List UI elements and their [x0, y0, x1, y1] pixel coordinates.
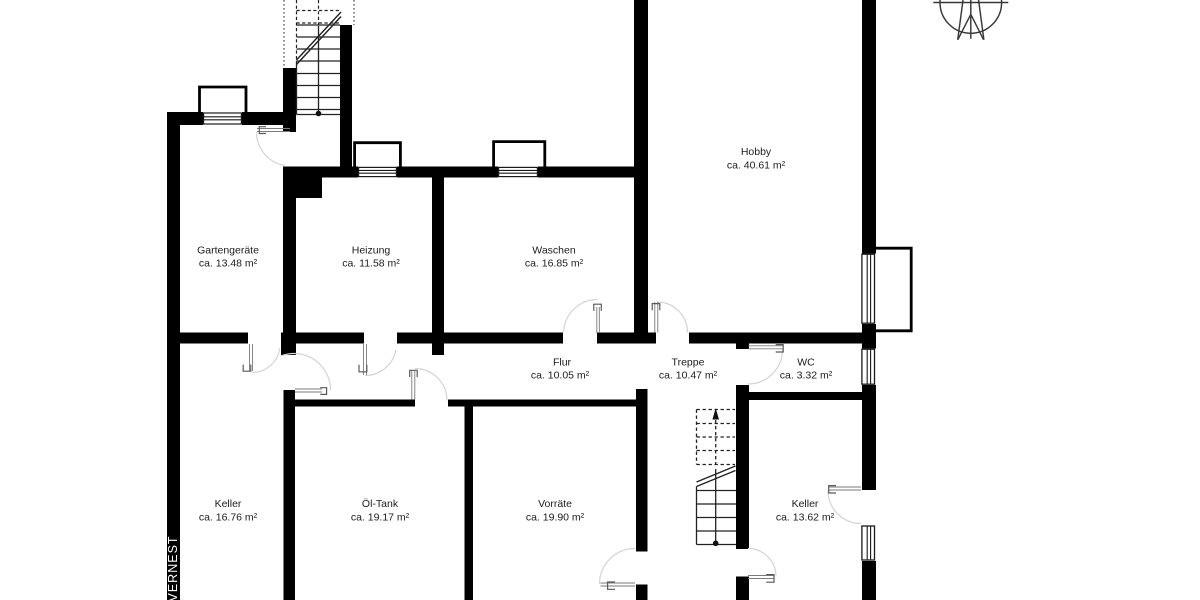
svg-text:Treppe: Treppe [672, 357, 705, 369]
svg-text:ca. 10.05 m²: ca. 10.05 m² [531, 370, 590, 382]
svg-text:ca. 16.76 m²: ca. 16.76 m² [199, 512, 258, 524]
svg-text:Gartengeräte: Gartengeräte [197, 245, 259, 257]
svg-text:WC: WC [797, 357, 815, 369]
svg-text:ca. 40.61 m²: ca. 40.61 m² [727, 160, 786, 172]
svg-text:Vorräte: Vorräte [538, 498, 572, 510]
svg-text:ca. 10.47 m²: ca. 10.47 m² [659, 370, 718, 382]
svg-text:ca. 13.62 m²: ca. 13.62 m² [776, 512, 835, 524]
svg-text:Waschen: Waschen [532, 245, 576, 257]
svg-text:Heizung: Heizung [352, 245, 391, 257]
svg-text:VERNEST: VERNEST [166, 535, 180, 600]
svg-text:ca. 19.90 m²: ca. 19.90 m² [526, 512, 585, 524]
svg-text:Keller: Keller [792, 498, 819, 510]
svg-text:ca. 11.58 m²: ca. 11.58 m² [342, 258, 400, 270]
svg-text:ca. 13.48 m²: ca. 13.48 m² [199, 258, 258, 270]
svg-text:Flur: Flur [553, 357, 572, 369]
svg-text:Öl-Tank: Öl-Tank [362, 498, 399, 510]
svg-text:Hobby: Hobby [741, 146, 772, 158]
svg-text:ca. 19.17 m²: ca. 19.17 m² [351, 512, 410, 524]
svg-text:Keller: Keller [215, 498, 242, 510]
svg-text:ca. 16.85 m²: ca. 16.85 m² [525, 258, 584, 270]
svg-text:ca. 3.32 m²: ca. 3.32 m² [780, 370, 833, 382]
